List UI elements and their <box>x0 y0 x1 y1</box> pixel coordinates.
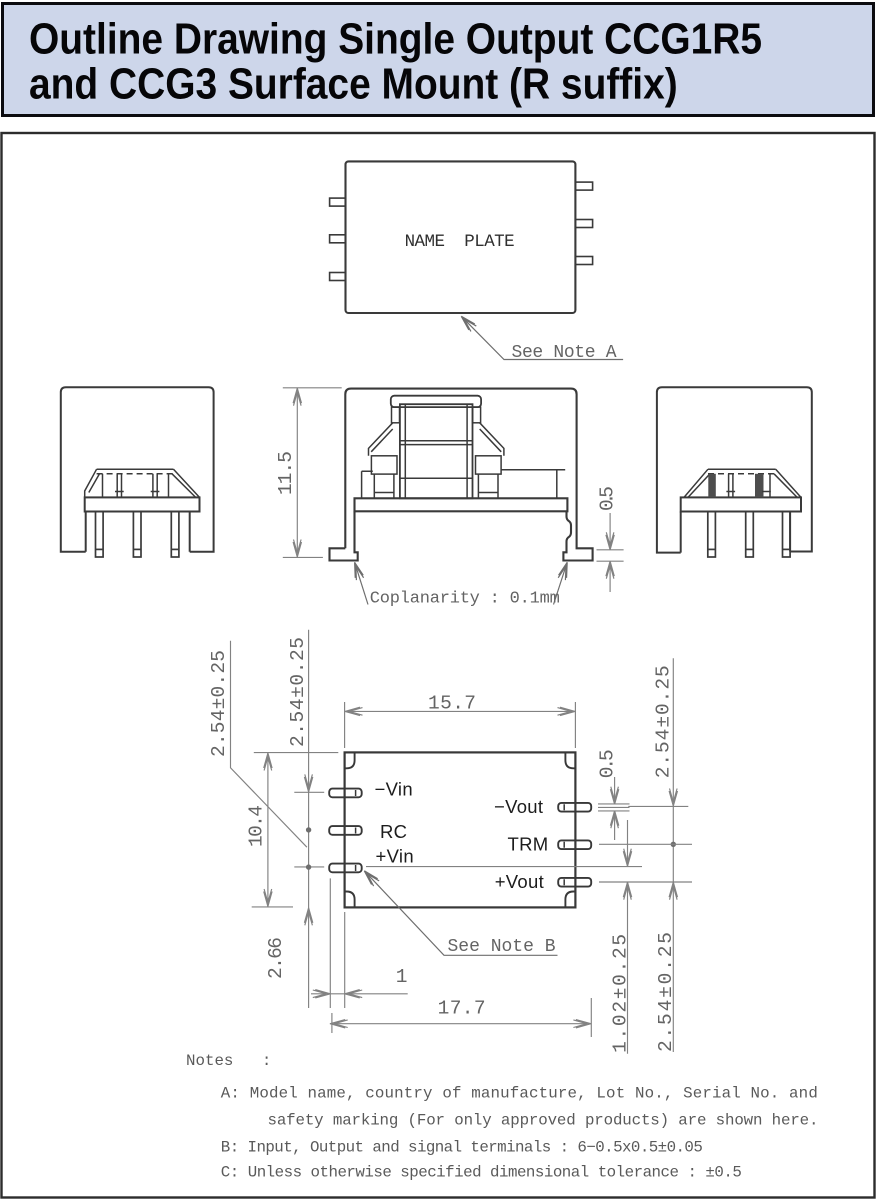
svg-text:See Note A: See Note A <box>512 343 617 363</box>
svg-text:11.5: 11.5 <box>275 451 297 495</box>
svg-text:0.5: 0.5 <box>597 486 619 511</box>
svg-text:safety marking (For only appro: safety marking (For only approved produc… <box>268 1112 819 1130</box>
svg-text:A: Model name, country of manu: A: Model name, country of manufacture, L… <box>221 1085 818 1103</box>
svg-text:2.66: 2.66 <box>265 937 287 979</box>
svg-text:+Vin: +Vin <box>376 845 414 866</box>
svg-text:NAME PLATE: NAME PLATE <box>405 232 515 252</box>
svg-text:−Vout: −Vout <box>494 796 543 817</box>
svg-text:RC: RC <box>380 821 407 842</box>
svg-text:Notes :: Notes : <box>186 1052 271 1070</box>
svg-text:+Vout: +Vout <box>495 871 544 892</box>
svg-text:−Vin: −Vin <box>375 778 413 799</box>
svg-text:Coplanarity : 0.1mm: Coplanarity : 0.1mm <box>370 590 560 609</box>
svg-text:15.7: 15.7 <box>428 693 476 715</box>
svg-text:and CCG3 Surface Mount (R suff: and CCG3 Surface Mount (R suffix) <box>29 60 678 108</box>
svg-text:2.54±0.25: 2.54±0.25 <box>208 650 230 757</box>
svg-text:0.5: 0.5 <box>597 749 619 778</box>
svg-text:1: 1 <box>396 966 408 988</box>
svg-text:B: Input, Output and signal te: B: Input, Output and signal terminals : … <box>221 1139 703 1157</box>
svg-text:Outline Drawing Single Output: Outline Drawing Single Output CCG1R5 <box>29 15 762 63</box>
svg-text:TRM: TRM <box>508 834 549 855</box>
svg-text:17.7: 17.7 <box>438 998 486 1020</box>
svg-text:2.54±0.25: 2.54±0.25 <box>652 665 674 778</box>
svg-text:2.54±0.25: 2.54±0.25 <box>287 637 309 747</box>
svg-text:C: Unless otherwise specified: C: Unless otherwise specified dimensiona… <box>221 1163 742 1181</box>
svg-text:See Note B: See Note B <box>448 937 556 957</box>
svg-text:1.02±0.25: 1.02±0.25 <box>610 934 632 1053</box>
svg-text:2.54±0.25: 2.54±0.25 <box>655 932 677 1052</box>
svg-text:10.4: 10.4 <box>246 805 268 847</box>
